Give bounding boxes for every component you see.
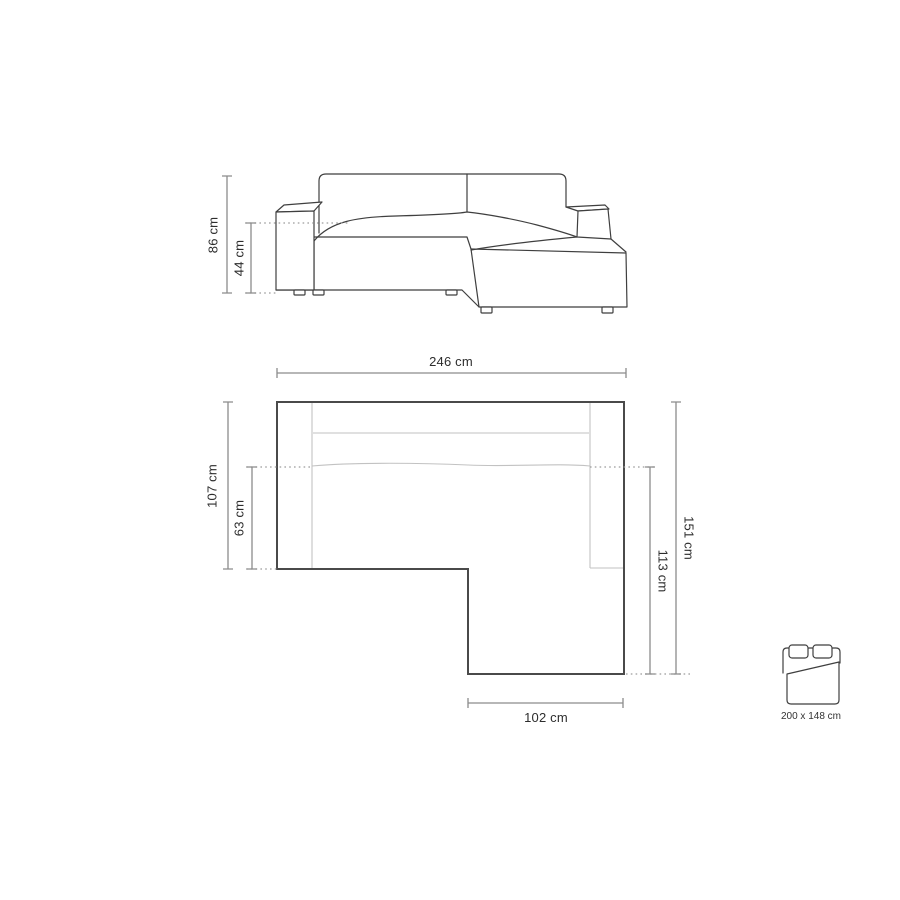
sofa-foot <box>602 307 613 313</box>
bed-pillow <box>789 645 808 658</box>
front-view: 86 cm 44 cm <box>206 174 627 313</box>
sleeping-area-label: 200 x 148 cm <box>781 711 841 722</box>
chaise-width-dim-label: 102 cm <box>524 710 568 725</box>
left-armrest-top-face <box>276 202 322 212</box>
chaise-depth-dim-line <box>645 467 655 674</box>
seat-height-dim-line <box>246 223 256 293</box>
sofa-dimension-diagram: 86 cm 44 cm <box>0 0 900 900</box>
right-depth-dim-line <box>671 402 681 674</box>
sofa-front-drawing <box>276 174 627 313</box>
chaise-width-dim-line <box>468 698 623 708</box>
right-depth-dim-label: 151 cm <box>681 516 696 560</box>
total-width-dim-label: 246 cm <box>429 354 473 369</box>
plan-outline <box>277 402 624 674</box>
chaise-cushion-curve <box>471 237 577 250</box>
left-depth-dim-line <box>223 402 233 569</box>
seat-depth-dim-label: 63 cm <box>232 500 247 536</box>
right-armrest-front-face <box>577 209 611 239</box>
total-width-dim-line <box>277 368 626 378</box>
bed-pillow <box>813 645 832 658</box>
seat-depth-dim-line <box>247 467 257 569</box>
sofa-foot <box>481 307 492 313</box>
chaise-depth-dim-label: 113 cm <box>655 550 670 593</box>
sofa-foot <box>313 290 324 295</box>
diagram-canvas: 86 cm 44 cm <box>0 0 900 900</box>
bed-mattress <box>787 662 839 704</box>
bed-icon <box>783 645 840 704</box>
sleeping-area-badge: 200 x 148 cm <box>781 645 841 722</box>
backrest-fill <box>319 174 566 236</box>
sofa-foot <box>294 290 305 295</box>
left-depth-dim-label: 107 cm <box>205 464 220 508</box>
total-height-dim-label: 86 cm <box>206 217 221 253</box>
total-height-dim-line <box>222 176 232 293</box>
sofa-plan-drawing <box>277 402 624 674</box>
top-view: 246 cm 107 cm 63 cm 151 cm 113 cm 102 cm <box>205 354 697 725</box>
right-armrest-outer-edge <box>611 239 626 252</box>
sofa-foot <box>446 290 457 295</box>
seat-height-dim-label: 44 cm <box>232 240 247 276</box>
